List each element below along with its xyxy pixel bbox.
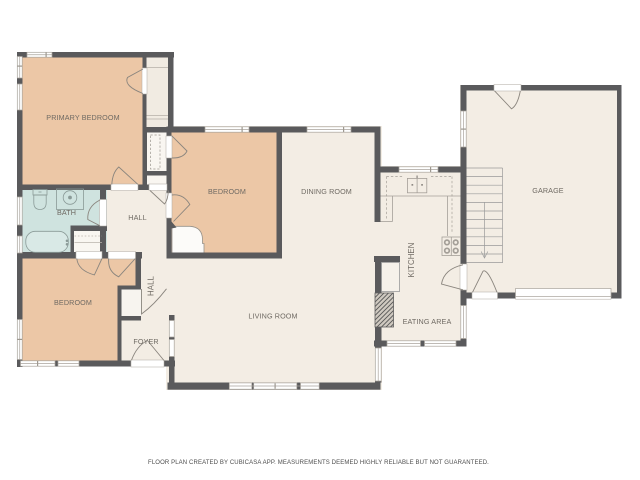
svg-text:BEDROOM: BEDROOM: [208, 187, 246, 196]
svg-text:EATING AREA: EATING AREA: [403, 317, 452, 326]
svg-text:GARAGE: GARAGE: [532, 186, 564, 195]
svg-text:BATH: BATH: [57, 208, 76, 217]
svg-text:DINING ROOM: DINING ROOM: [301, 187, 352, 196]
svg-text:BEDROOM: BEDROOM: [54, 298, 92, 307]
svg-text:KITCHEN: KITCHEN: [407, 243, 416, 278]
svg-text:HALL: HALL: [128, 213, 146, 222]
svg-text:PRIMARY BEDROOM: PRIMARY BEDROOM: [46, 113, 119, 122]
svg-text:LIVING ROOM: LIVING ROOM: [248, 312, 297, 321]
svg-text:FOYER: FOYER: [133, 337, 158, 346]
svg-text:HALL: HALL: [146, 275, 155, 295]
svg-text:FLOOR PLAN CREATED BY CUBICASA: FLOOR PLAN CREATED BY CUBICASA APP. MEAS…: [148, 460, 489, 466]
